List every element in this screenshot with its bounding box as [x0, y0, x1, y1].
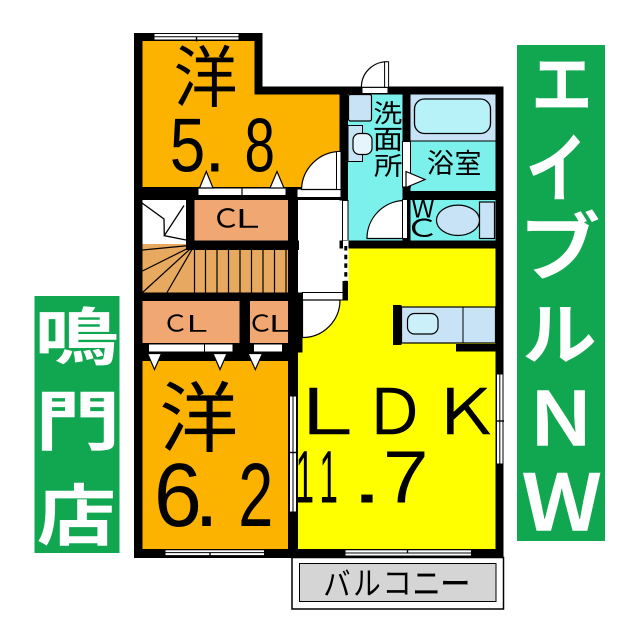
svg-text:.: .: [194, 446, 219, 546]
svg-text:8: 8: [244, 104, 274, 189]
svg-text:5: 5: [170, 102, 206, 188]
svg-text:.: .: [351, 436, 384, 518]
svg-text:.: .: [204, 104, 225, 189]
svg-text:2: 2: [238, 446, 273, 546]
svg-text:1: 1: [319, 437, 338, 520]
svg-text:1: 1: [295, 437, 314, 520]
svg-text:7: 7: [383, 435, 429, 518]
